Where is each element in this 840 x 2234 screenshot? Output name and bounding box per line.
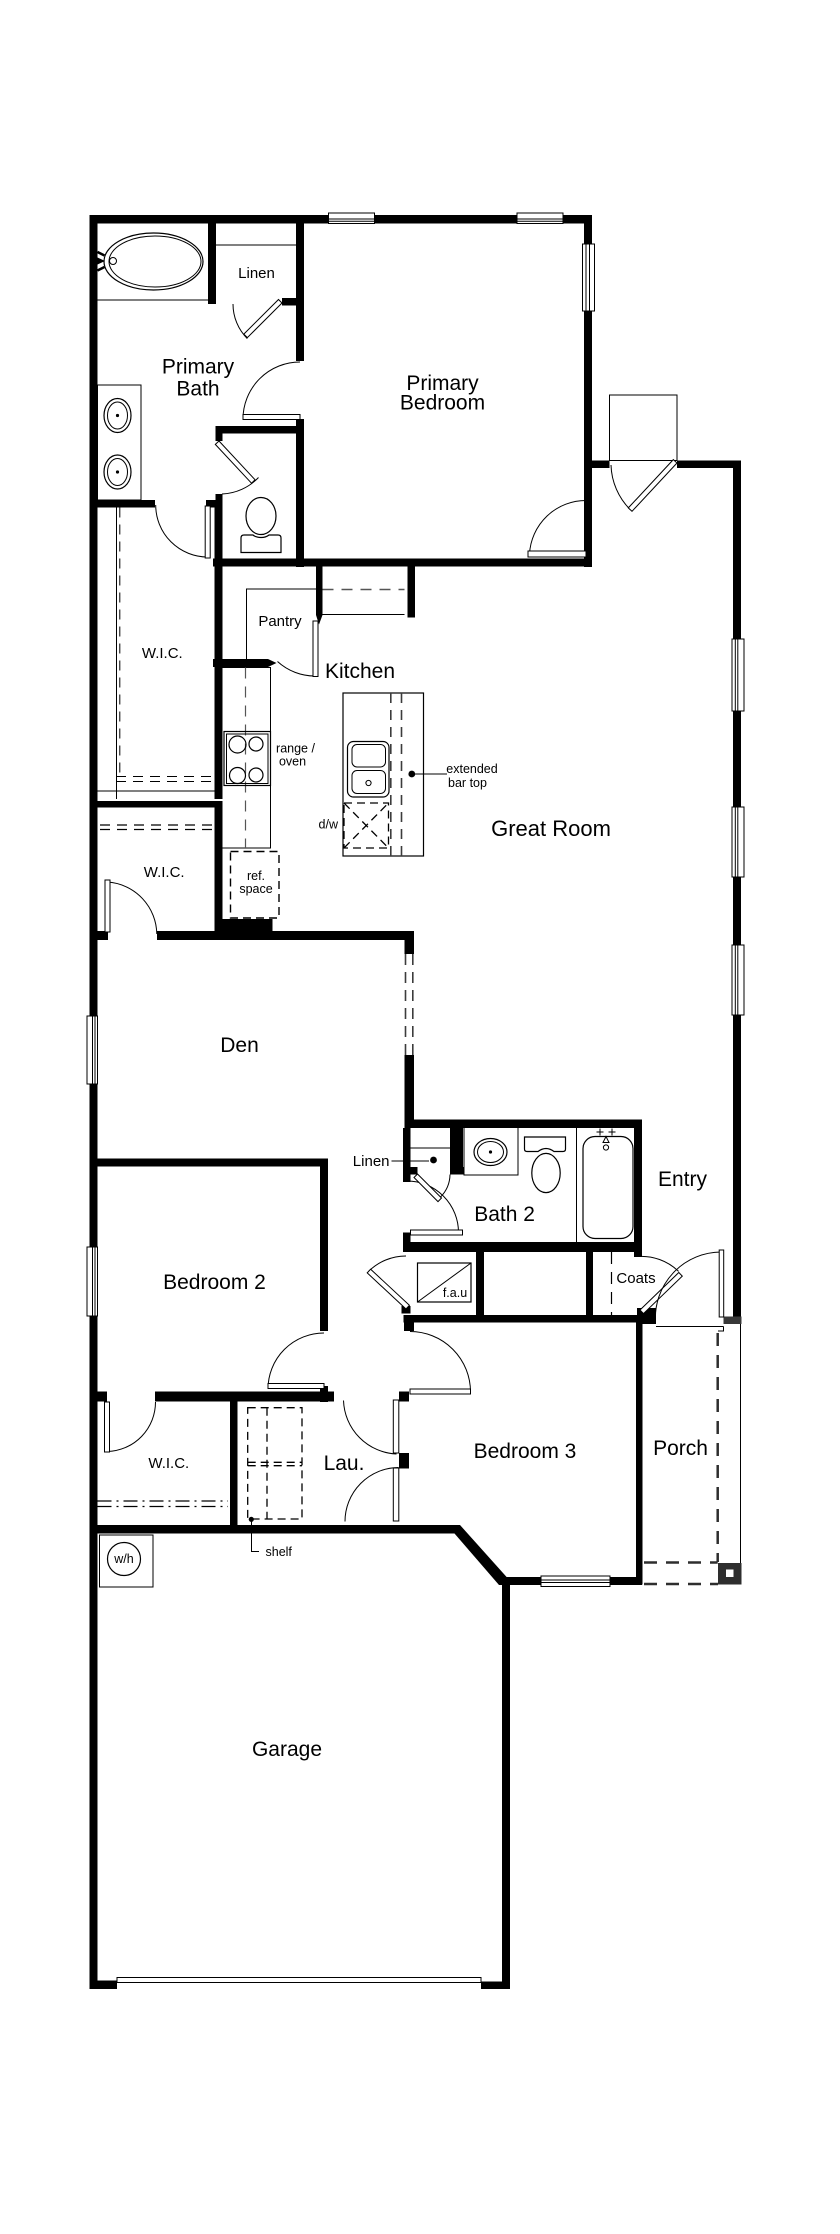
- svg-text:Coats: Coats: [616, 1270, 655, 1287]
- svg-text:Garage: Garage: [252, 1738, 322, 1761]
- svg-text:oven: oven: [279, 755, 306, 769]
- svg-text:space: space: [239, 882, 272, 896]
- svg-text:Bedroom 2: Bedroom 2: [163, 1271, 266, 1294]
- svg-text:W.I.C.: W.I.C.: [144, 864, 185, 881]
- svg-text:Lau.: Lau.: [324, 1452, 365, 1475]
- svg-text:W.I.C.: W.I.C.: [142, 645, 183, 662]
- svg-text:ref.: ref.: [247, 869, 265, 883]
- svg-text:shelf: shelf: [266, 1545, 293, 1559]
- svg-text:Bedroom: Bedroom: [400, 392, 485, 415]
- svg-text:extended: extended: [446, 762, 497, 776]
- svg-text:Pantry: Pantry: [258, 613, 302, 630]
- svg-text:Linen: Linen: [238, 265, 275, 282]
- svg-text:Bath: Bath: [176, 378, 219, 401]
- svg-text:Linen: Linen: [353, 1153, 390, 1170]
- svg-text:Kitchen: Kitchen: [325, 660, 395, 683]
- svg-text:f.a.u: f.a.u: [443, 1286, 467, 1300]
- svg-text:d/w: d/w: [319, 818, 339, 832]
- svg-text:Porch: Porch: [653, 1437, 708, 1460]
- svg-text:bar top: bar top: [448, 776, 487, 790]
- svg-text:Bath 2: Bath 2: [474, 1203, 535, 1226]
- svg-text:Entry: Entry: [658, 1168, 708, 1191]
- svg-text:W.I.C.: W.I.C.: [148, 1455, 189, 1472]
- svg-text:Great Room: Great Room: [491, 816, 611, 841]
- svg-text:range /: range /: [276, 742, 315, 756]
- svg-text:Bedroom 3: Bedroom 3: [474, 1440, 577, 1463]
- svg-text:w/h: w/h: [113, 1552, 134, 1566]
- svg-text:Den: Den: [220, 1034, 259, 1057]
- svg-text:Primary: Primary: [162, 356, 235, 379]
